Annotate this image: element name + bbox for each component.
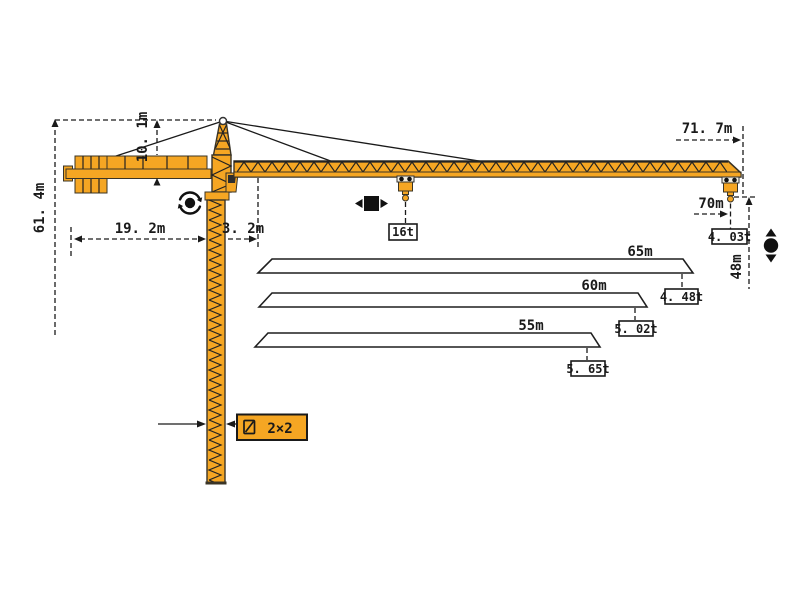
- hook-mid: [403, 195, 409, 201]
- mast-lattice: [207, 200, 225, 483]
- hook-block: [728, 192, 734, 196]
- max-load-label: 16t: [392, 225, 414, 239]
- trolley-body: [399, 182, 413, 191]
- hook-height-label: 48m: [729, 254, 745, 279]
- hoist-dot: [764, 238, 778, 252]
- diagram-canvas: 61. 4m 10. 1m 19. 2m 3. 2m: [0, 0, 800, 600]
- tower-mast: [206, 200, 227, 483]
- mast-section-label: 2×2: [267, 421, 292, 437]
- trolley-square: [364, 196, 379, 211]
- max-radius-label: 71. 7m: [682, 121, 733, 137]
- variant-bar: [258, 259, 693, 273]
- variant-bar: [259, 293, 647, 307]
- tip-load-label: 4. 03t: [708, 230, 751, 244]
- variant-bar: [255, 333, 600, 347]
- trolley-wheel: [724, 178, 729, 183]
- trolley-body: [724, 183, 738, 192]
- counter-jib-platform: [107, 156, 207, 169]
- slewing-dot: [185, 198, 195, 208]
- counter-jib-length-label: 19. 2m: [115, 221, 166, 237]
- trolley-wheel: [399, 177, 404, 182]
- trolley-wheel: [732, 178, 737, 183]
- variant-length-label: 60m: [581, 278, 606, 294]
- trolley-wheel: [407, 177, 412, 182]
- jib-bottom-chord: [234, 172, 741, 177]
- jib-root-offset-label: 3. 2m: [222, 221, 264, 237]
- head-height-label: 10. 1m: [135, 112, 151, 163]
- tip-radius-label: 70m: [698, 196, 723, 212]
- jib-lattice: [237, 162, 727, 172]
- turntable: [205, 192, 229, 200]
- counter-jib-beam: [66, 169, 211, 179]
- total-height-label: 61. 4m: [32, 183, 48, 234]
- main-jib: [234, 161, 741, 177]
- hook-block: [403, 191, 409, 195]
- variant-load-label: 4. 48t: [660, 290, 703, 304]
- hook-tip: [728, 196, 734, 202]
- variant-load-label: 5. 65t: [566, 362, 609, 376]
- apex-pulley: [220, 118, 227, 125]
- variant-load-label: 5. 02t: [614, 322, 657, 336]
- crane-spec-diagram: 61. 4m 10. 1m 19. 2m 3. 2m: [0, 0, 800, 600]
- variant-length-label: 55m: [518, 318, 543, 334]
- variant-length-label: 65m: [627, 244, 652, 260]
